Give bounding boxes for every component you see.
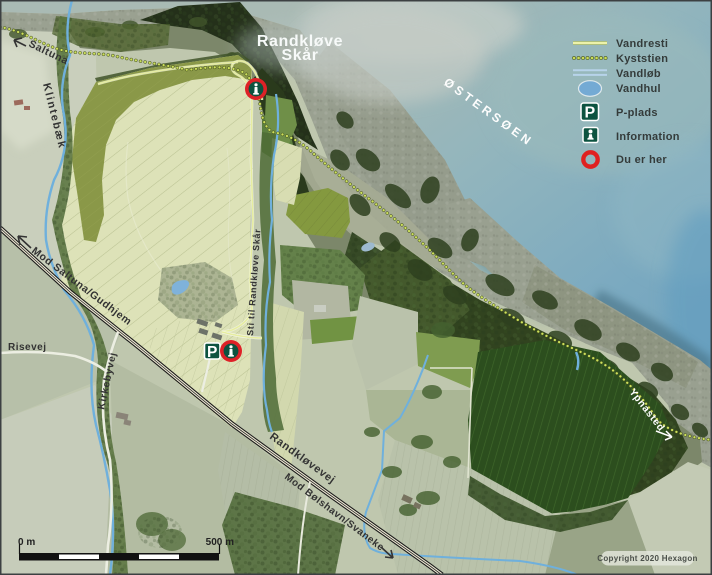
svg-text:Vandhul: Vandhul <box>616 83 661 95</box>
svg-text:P: P <box>207 344 217 361</box>
svg-text:Vandresti: Vandresti <box>616 38 668 50</box>
svg-text:Copyright 2020 Hexagon: Copyright 2020 Hexagon <box>597 554 697 563</box>
svg-text:Kyststien: Kyststien <box>616 53 668 65</box>
svg-text:Skår: Skår <box>281 46 318 64</box>
svg-text:500 m: 500 m <box>206 537 234 548</box>
svg-text:Du er her: Du er her <box>616 154 667 166</box>
svg-text:0 m: 0 m <box>18 537 35 548</box>
svg-text:Risevej: Risevej <box>8 342 47 353</box>
svg-text:P: P <box>584 105 595 122</box>
svg-text:Vandløb: Vandløb <box>616 68 661 80</box>
svg-text:P-plads: P-plads <box>616 107 658 119</box>
svg-text:Information: Information <box>616 131 680 143</box>
